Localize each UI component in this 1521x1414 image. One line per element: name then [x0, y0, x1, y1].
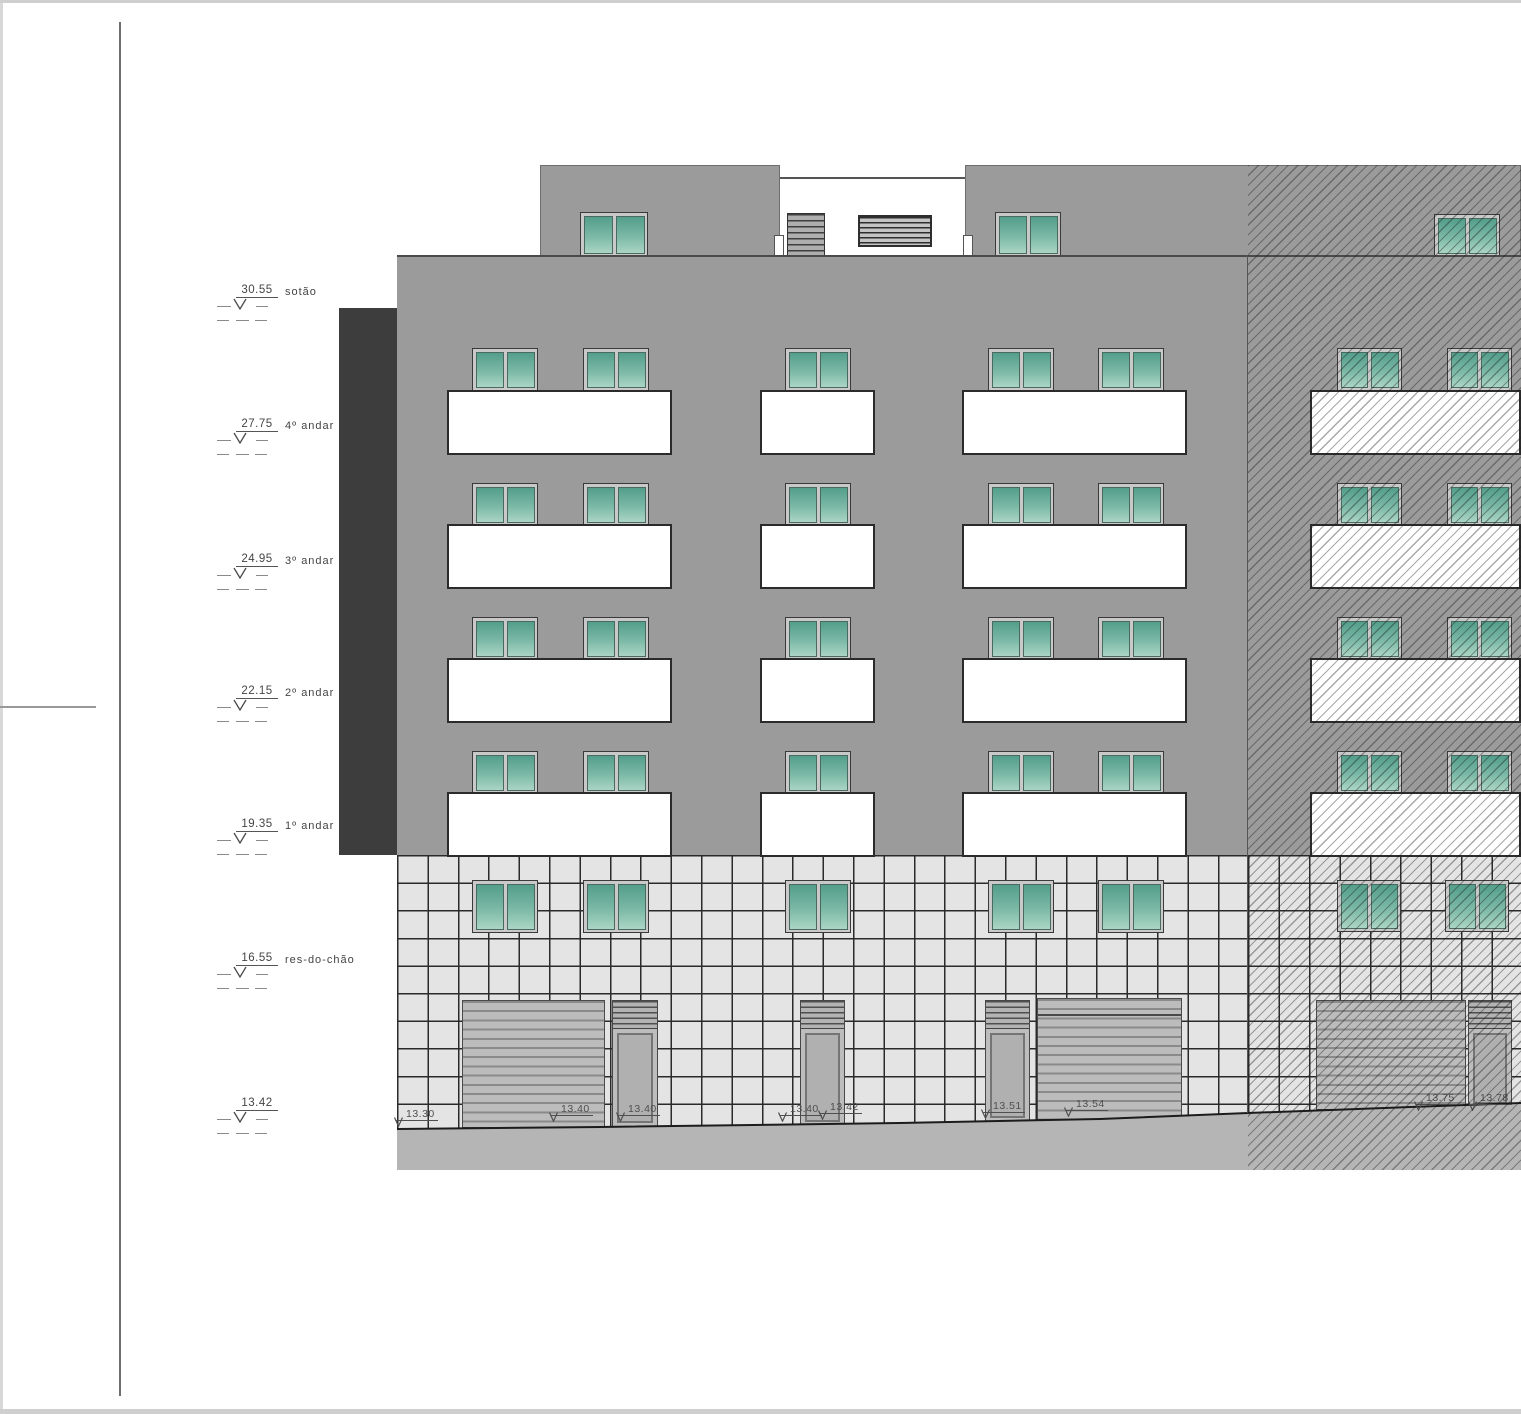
dash — [236, 988, 249, 989]
balcony — [1310, 792, 1521, 857]
window — [583, 483, 649, 526]
window — [1337, 483, 1402, 526]
window — [785, 348, 851, 391]
balcony — [1310, 658, 1521, 723]
dash — [236, 1133, 249, 1134]
hatch-boundary-line — [1247, 255, 1248, 1113]
level-value: 27.75 — [236, 418, 278, 432]
dash — [255, 854, 267, 855]
window — [583, 617, 649, 660]
dash — [255, 988, 267, 989]
window — [1098, 483, 1164, 526]
window — [785, 483, 851, 526]
window — [785, 880, 851, 933]
dash — [236, 320, 249, 321]
balcony — [760, 658, 875, 723]
dash — [256, 974, 268, 975]
window — [1098, 348, 1164, 391]
level-label: res-do-chão — [285, 954, 355, 966]
dash — [217, 721, 229, 722]
window — [472, 617, 538, 660]
dash — [255, 1133, 267, 1134]
dash — [217, 320, 229, 321]
datum-v-icon — [778, 1112, 788, 1122]
dash — [217, 974, 231, 975]
balcony — [447, 524, 672, 589]
datum-v-icon — [616, 1112, 626, 1122]
window — [1098, 751, 1164, 794]
dash — [255, 721, 267, 722]
dash — [256, 1119, 268, 1120]
datum-v-icon — [233, 432, 247, 444]
datum-v-icon — [1064, 1107, 1074, 1117]
dash — [217, 440, 231, 441]
spot-elevation: 13.75 — [1416, 1088, 1458, 1106]
balcony — [962, 658, 1187, 723]
window — [1447, 751, 1512, 794]
balcony — [760, 792, 875, 857]
spot-elevation: 13.78 — [1470, 1088, 1512, 1106]
title-block-divider — [119, 22, 121, 1396]
datum-v-icon — [818, 1110, 828, 1120]
window — [472, 880, 538, 933]
window — [1447, 348, 1512, 391]
balcony — [447, 390, 672, 455]
window — [1337, 751, 1402, 794]
facade-top-edge — [397, 255, 1521, 257]
dash — [217, 1133, 229, 1134]
dash — [236, 454, 249, 455]
level-label: 2º andar — [285, 687, 334, 699]
spot-elevation: 13.42 — [820, 1097, 862, 1115]
dash — [256, 440, 268, 441]
spot-elevation: 13.40 — [780, 1099, 822, 1117]
level-value: 24.95 — [236, 553, 278, 567]
dash — [256, 707, 268, 708]
datum-v-icon — [1468, 1101, 1478, 1111]
window — [1445, 880, 1509, 932]
dash — [217, 840, 231, 841]
dash — [256, 575, 268, 576]
window — [1434, 214, 1500, 257]
elevation-sheet: 13.30 13.40 13.40 13.40 13.42 13.51 13.5… — [0, 0, 1521, 1414]
roof-post — [963, 235, 973, 257]
window — [1447, 617, 1512, 660]
side-wall — [339, 308, 397, 855]
dash — [236, 854, 249, 855]
dash — [217, 988, 229, 989]
spot-elevation: 13.54 — [1066, 1094, 1108, 1112]
sheet-border-top — [0, 0, 1521, 3]
window — [472, 348, 538, 391]
window — [785, 617, 851, 660]
dash — [256, 306, 268, 307]
balcony — [962, 390, 1187, 455]
datum-v-icon — [233, 298, 247, 310]
roof-structure-left — [540, 165, 780, 257]
window — [583, 880, 649, 933]
datum-v-icon — [549, 1112, 559, 1122]
dash — [255, 320, 267, 321]
window — [1337, 348, 1402, 391]
level-label: sotão — [285, 286, 317, 298]
level-label: 3º andar — [285, 555, 334, 567]
level-label: 4º andar — [285, 420, 334, 432]
spot-elevation: 13.51 — [983, 1096, 1025, 1114]
datum-v-icon — [981, 1109, 991, 1119]
dash — [217, 306, 231, 307]
window — [988, 617, 1054, 660]
spot-elevation: 13.30 — [396, 1104, 438, 1122]
dash — [217, 1119, 231, 1120]
dash — [236, 589, 249, 590]
window — [988, 880, 1054, 933]
level-value: 19.35 — [236, 818, 278, 832]
window — [472, 751, 538, 794]
balcony — [447, 658, 672, 723]
margin-tick — [0, 706, 96, 708]
balcony — [962, 524, 1187, 589]
balcony — [1310, 524, 1521, 589]
dash — [217, 575, 231, 576]
balcony — [1310, 390, 1521, 455]
datum-v-icon — [233, 567, 247, 579]
dash — [217, 589, 229, 590]
window — [1098, 617, 1164, 660]
datum-v-icon — [394, 1117, 404, 1127]
balcony — [760, 390, 875, 455]
sheet-border-bottom — [0, 1409, 1521, 1414]
dash — [217, 454, 229, 455]
window — [580, 212, 648, 257]
dash — [256, 840, 268, 841]
window — [995, 212, 1061, 257]
datum-v-icon — [233, 1111, 247, 1123]
level-value: 22.15 — [236, 685, 278, 699]
datum-v-icon — [233, 699, 247, 711]
datum-v-icon — [233, 832, 247, 844]
window — [583, 751, 649, 794]
level-value: 30.55 — [236, 284, 278, 298]
window — [988, 751, 1054, 794]
level-value: 16.55 — [236, 952, 278, 966]
dash — [255, 454, 267, 455]
roof-louver-door — [787, 213, 825, 257]
datum-v-icon — [233, 966, 247, 978]
window — [1447, 483, 1512, 526]
window — [785, 751, 851, 794]
dash — [236, 721, 249, 722]
roof-vent — [858, 215, 932, 247]
roof-post — [774, 235, 784, 257]
datum-v-icon — [1414, 1101, 1424, 1111]
window — [988, 348, 1054, 391]
window — [1337, 880, 1401, 932]
spot-elevation: 13.40 — [551, 1099, 593, 1117]
level-label: 1º andar — [285, 820, 334, 832]
dash — [217, 707, 231, 708]
window — [583, 348, 649, 391]
spot-elevation: 13.40 — [618, 1099, 660, 1117]
balcony — [962, 792, 1187, 857]
balcony — [760, 524, 875, 589]
window — [1098, 880, 1164, 933]
window — [988, 483, 1054, 526]
level-value: 13.42 — [236, 1097, 278, 1111]
window — [1337, 617, 1402, 660]
balcony — [447, 792, 672, 857]
window — [472, 483, 538, 526]
dash — [217, 854, 229, 855]
dash — [255, 589, 267, 590]
